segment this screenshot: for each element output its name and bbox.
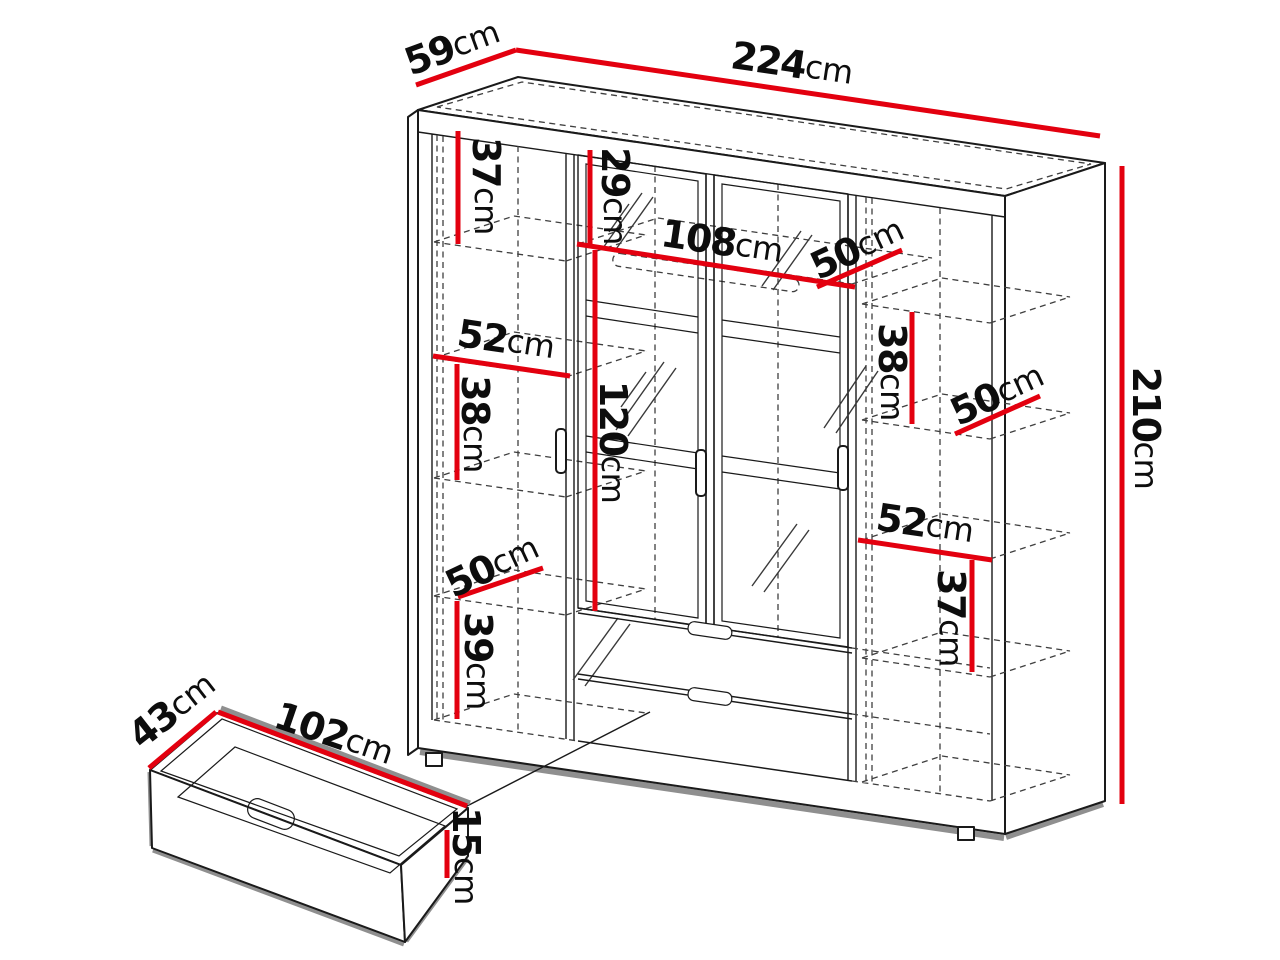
dimension-height: 210cm <box>1122 166 1168 804</box>
dimension-right-bottom-section-label: 37cm <box>929 569 973 667</box>
right-foot <box>958 827 974 840</box>
dimension-right-top-section: 38cm <box>870 312 914 424</box>
dimension-center-top-section-label: 29cm <box>593 147 637 245</box>
dimension-left-bottom-section: 39cm <box>456 601 500 719</box>
dimension-depth: 59cm <box>399 10 516 85</box>
dimension-center-door-height-label: 120cm <box>591 381 635 504</box>
dimension-right-top-section-label: 38cm <box>870 323 914 421</box>
dimension-left-mid-section-label: 38cm <box>453 375 497 473</box>
dimension-center-top-section: 29cm <box>590 147 637 245</box>
dimension-left-top-section-label: 37cm <box>464 137 508 235</box>
door-handle-right <box>838 446 848 490</box>
left-side-edge <box>408 110 418 755</box>
dimension-drawer-height: 15cm <box>444 807 488 905</box>
dimension-left-mid-section: 38cm <box>453 364 497 480</box>
left-foot <box>426 753 442 766</box>
dimension-drawer-height-label: 15cm <box>444 807 488 905</box>
door-handle-left <box>556 429 566 473</box>
dimension-height-label: 210cm <box>1124 367 1168 490</box>
wardrobe-drawing <box>408 77 1105 840</box>
dimension-right-bottom-section: 37cm <box>929 560 973 672</box>
wardrobe-dimension-diagram: 59cm 224cm 210cm 37cm 29cm 108cm 50cm <box>0 0 1280 960</box>
door-handle-center <box>696 450 706 496</box>
right-side-face <box>1005 163 1105 834</box>
dimension-left-bottom-section-label: 39cm <box>456 612 500 710</box>
